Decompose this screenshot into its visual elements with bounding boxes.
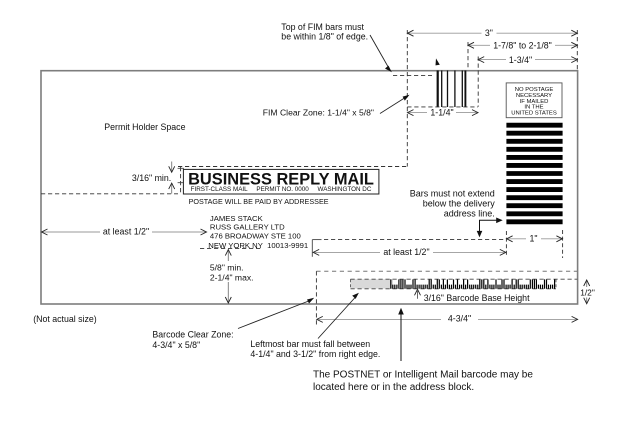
svg-text:5/8" min.: 5/8" min. bbox=[210, 263, 244, 273]
svg-text:The POSTNET or Intelligent Mai: The POSTNET or Intelligent Mail barcode … bbox=[313, 370, 533, 381]
svg-text:RUSS GALLERY LTD: RUSS GALLERY LTD bbox=[210, 223, 285, 232]
svg-text:Leftmost bar must fall between: Leftmost bar must fall between bbox=[250, 339, 370, 349]
svg-text:4-3/4" x 5/8": 4-3/4" x 5/8" bbox=[152, 340, 200, 350]
svg-text:at least 1/2": at least 1/2" bbox=[103, 226, 149, 236]
svg-text:FIM Clear Zone: 1-1/4" x 5/8": FIM Clear Zone: 1-1/4" x 5/8" bbox=[263, 108, 374, 118]
svg-text:2-1/4" max.: 2-1/4" max. bbox=[210, 273, 254, 283]
svg-text:be within 1/8" of edge.: be within 1/8" of edge. bbox=[281, 32, 368, 42]
svg-text:476 BROADWAY STE 100: 476 BROADWAY STE 100 bbox=[210, 232, 301, 241]
svg-text:Barcode Clear Zone:: Barcode Clear Zone: bbox=[152, 329, 233, 339]
svg-text:at least 1/2": at least 1/2" bbox=[383, 247, 429, 257]
svg-text:4-1/4" and 3-1/2" from right e: 4-1/4" and 3-1/2" from right edge. bbox=[250, 349, 380, 359]
svg-text:(Not actual size): (Not actual size) bbox=[33, 314, 97, 324]
svg-text:POSTAGE WILL BE PAID BY ADDRES: POSTAGE WILL BE PAID BY ADDRESSEE bbox=[189, 197, 329, 206]
svg-text:1/2": 1/2" bbox=[580, 288, 595, 298]
svg-text:4-3/4": 4-3/4" bbox=[448, 313, 471, 323]
svg-text:Permit Holder Space: Permit Holder Space bbox=[104, 122, 185, 132]
svg-text:Bars must not extend: Bars must not extend bbox=[410, 189, 495, 199]
svg-text:3/16" min.: 3/16" min. bbox=[132, 173, 171, 183]
svg-text:address line.: address line. bbox=[444, 208, 495, 218]
svg-text:1": 1" bbox=[529, 234, 537, 244]
svg-text:UNITED STATES: UNITED STATES bbox=[511, 111, 557, 117]
svg-text:3/16" Barcode Base Height: 3/16" Barcode Base Height bbox=[424, 293, 530, 303]
svg-text:1-3/4": 1-3/4" bbox=[509, 55, 532, 65]
svg-text:3": 3" bbox=[485, 28, 493, 38]
svg-text:1-1/4": 1-1/4" bbox=[430, 108, 453, 118]
svg-text:FIRST-CLASS MAIL PERMIT NO: FIRST-CLASS MAIL PERMIT NO. 0000 WASHING… bbox=[191, 186, 372, 193]
svg-text:1-7/8" to 2-1/8": 1-7/8" to 2-1/8" bbox=[493, 41, 552, 51]
svg-text:below the delivery: below the delivery bbox=[423, 199, 496, 209]
svg-text:located here or in the address: located here or in the address block. bbox=[313, 382, 474, 393]
